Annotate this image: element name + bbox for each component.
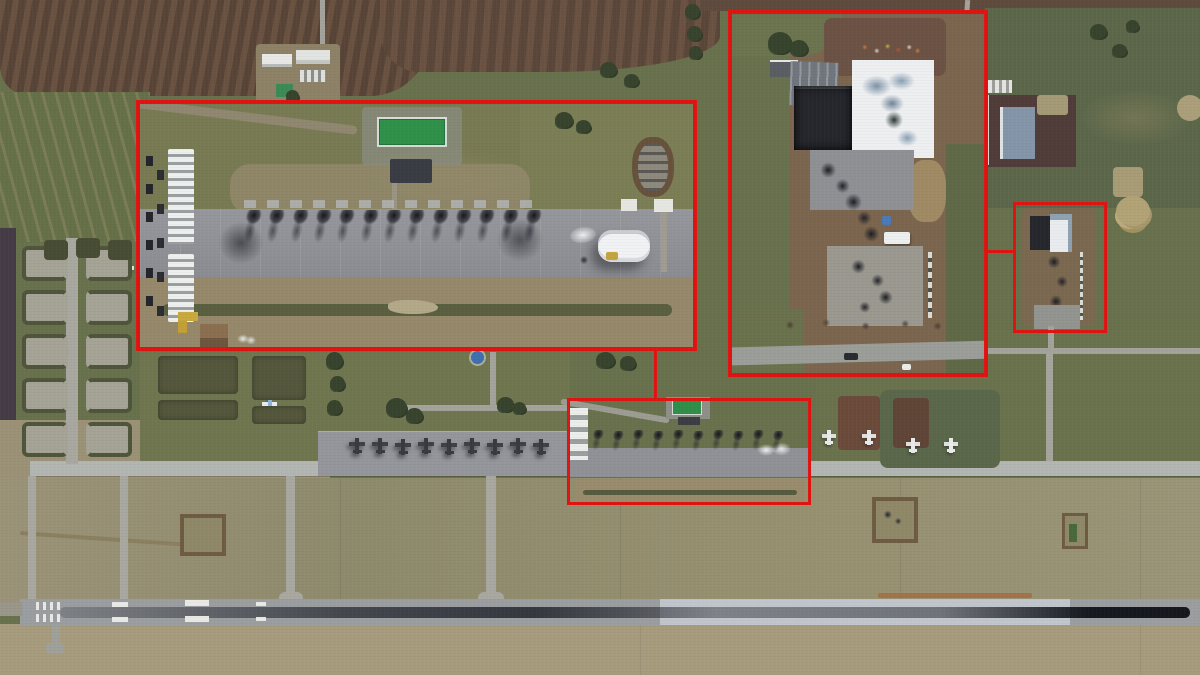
connector-flightline xyxy=(654,351,657,398)
inset1-white-pad xyxy=(621,199,637,211)
tree-icon xyxy=(620,356,636,370)
tree-icon xyxy=(330,376,345,391)
revetment xyxy=(86,290,132,325)
inset1-yellow-equipment xyxy=(178,321,187,333)
revetment-berm xyxy=(76,238,100,258)
tree-icon xyxy=(685,4,700,19)
revetment-berm xyxy=(252,406,306,424)
inset2-blue-debris xyxy=(882,216,891,225)
inset1-path xyxy=(661,212,667,272)
dead-tree-icon xyxy=(1116,196,1150,226)
tree-icon xyxy=(1090,24,1107,39)
inset1-hardstand-ticks xyxy=(244,200,534,208)
inset2-grass-right xyxy=(946,144,984,373)
parked-aircraft-icon xyxy=(510,438,526,454)
inset1-pale-mark xyxy=(388,300,438,314)
tree-icon xyxy=(327,400,342,415)
inset1-yellow-equipment xyxy=(178,312,198,321)
decoy-aircraft-icon xyxy=(862,430,876,445)
connector-buildings xyxy=(988,250,1013,253)
tree-icon xyxy=(624,74,639,87)
inset1-containers xyxy=(168,149,194,244)
tree-icon xyxy=(326,352,343,369)
revetment-berm xyxy=(252,356,306,400)
parked-aircraft-icon xyxy=(349,438,365,454)
revetment xyxy=(22,378,68,413)
revetment xyxy=(22,334,68,369)
tree-icon xyxy=(768,32,792,54)
inset1-green-roof-building xyxy=(377,117,447,147)
parked-aircraft-icon xyxy=(372,438,388,454)
revetment xyxy=(86,334,132,369)
target-box-buildings xyxy=(1013,202,1107,333)
inset1-yellow-debris xyxy=(606,252,618,260)
tree-icon xyxy=(576,120,591,133)
inset2-road-vehicle xyxy=(844,353,858,360)
decoy-aircraft-icon xyxy=(906,438,920,453)
target-box-flightline xyxy=(567,398,811,505)
tree-icon xyxy=(386,398,407,417)
inset-flightline xyxy=(136,100,697,351)
satellite-image xyxy=(0,0,1200,675)
tree-icon xyxy=(600,62,617,77)
inset2-orange-equipment-row xyxy=(860,40,920,58)
inset1-oval-compound xyxy=(632,137,674,197)
inset1-vehicles xyxy=(146,156,164,316)
revetment-berm xyxy=(158,400,238,420)
inset1-tan-building xyxy=(200,324,228,347)
inset-buildings xyxy=(728,10,988,377)
parked-aircraft-icon xyxy=(395,439,411,455)
parked-aircraft-icon xyxy=(464,438,480,454)
revetment xyxy=(86,378,132,413)
inset2-road-white-object xyxy=(902,364,911,370)
inset1-white-equipment xyxy=(236,332,256,347)
parked-aircraft-icon xyxy=(441,439,457,455)
revetment xyxy=(22,290,68,325)
tree-icon xyxy=(687,26,702,41)
tree-icon xyxy=(406,408,423,423)
revetment-berm xyxy=(108,240,132,260)
revetment xyxy=(22,422,68,457)
inset2-fence xyxy=(928,252,932,318)
tree-icon xyxy=(790,40,808,56)
tree-icon xyxy=(1112,44,1127,57)
revetment-berm xyxy=(158,356,238,394)
tree-icon xyxy=(689,46,702,59)
revetment-berm xyxy=(44,240,68,260)
inset1-smoke-stain xyxy=(212,216,270,276)
parked-aircraft-icon xyxy=(418,438,434,454)
tree-icon xyxy=(497,397,514,412)
parked-aircraft-icon xyxy=(487,439,503,455)
tree-icon xyxy=(513,402,526,414)
inset1-dark-building xyxy=(390,159,432,183)
tree-icon xyxy=(596,352,615,368)
decoy-aircraft-icon xyxy=(944,438,958,453)
inset2-debris-row xyxy=(772,314,952,336)
revetment xyxy=(86,422,132,457)
decoy-aircraft-icon xyxy=(822,430,836,445)
tree-icon xyxy=(1126,20,1139,32)
inset2-burned-building xyxy=(794,86,852,150)
parked-aircraft-icon xyxy=(533,439,549,455)
inset1-white-pad xyxy=(654,199,673,212)
inset1-debris-dark xyxy=(576,252,596,268)
inset2-white-truck xyxy=(884,232,910,244)
tree-icon xyxy=(555,112,573,128)
